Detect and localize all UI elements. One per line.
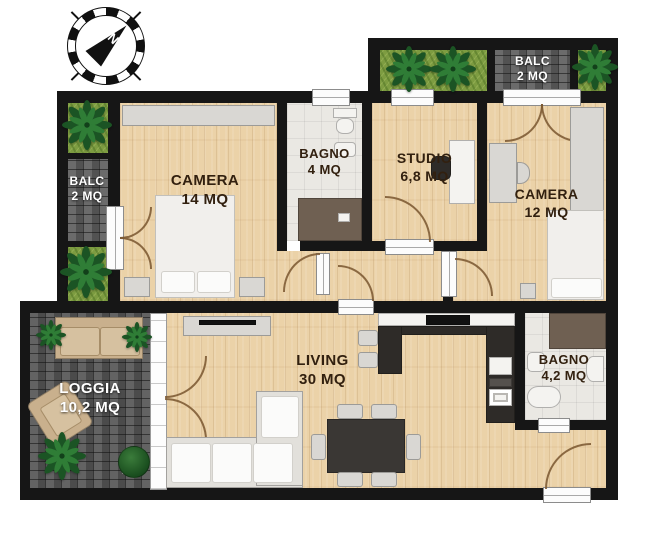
shower — [549, 313, 606, 349]
palm-plant-icon — [386, 46, 432, 92]
room-name: BAGNO — [539, 352, 589, 368]
shower-handle — [338, 213, 350, 222]
camera14-wardrobe — [122, 105, 275, 126]
wall-bagno42-bottom-a — [515, 420, 538, 430]
tv-cabinet — [183, 316, 271, 336]
dining-table — [327, 419, 405, 473]
room-label-bagno42: BAGNO 4,2 MQ — [519, 352, 609, 385]
palm-plant-icon — [36, 320, 66, 350]
bathtub — [527, 386, 561, 408]
room-area: 4,2 MQ — [541, 368, 586, 384]
toilet — [336, 118, 354, 134]
camera14-nightstand — [124, 277, 150, 297]
wall-studio-camera12 — [477, 91, 487, 251]
room-name: BALC — [70, 174, 105, 189]
sofa-cushion — [261, 396, 299, 438]
room-name: CAMERA — [171, 172, 239, 191]
wall-planter-divider — [68, 153, 108, 159]
sofa-cushion — [171, 443, 211, 483]
wall-hall-top-a — [300, 241, 385, 251]
room-name: BAGNO — [299, 146, 349, 162]
wall-bottom — [20, 488, 618, 500]
camera12-nightstand — [520, 283, 536, 299]
palm-plant-icon — [62, 100, 112, 150]
room-area: 30 MQ — [299, 371, 346, 390]
room-area: 2 MQ — [72, 189, 103, 204]
room-name: CAMERA — [515, 186, 579, 204]
wall-bagno42-bottom-b — [568, 420, 606, 430]
wall-camera14-bottom — [108, 301, 338, 313]
palm-plant-icon — [430, 46, 476, 92]
wall-camera12-bottom — [443, 301, 606, 313]
room-label-camera12: CAMERA 12 MQ — [487, 186, 606, 221]
room-name: BALC — [515, 54, 550, 69]
room-area: 10,2 MQ — [60, 399, 120, 418]
room-area: 4 MQ — [308, 162, 341, 178]
dining-chair — [371, 404, 397, 419]
room-area: 14 MQ — [181, 191, 228, 210]
bed-pillow — [197, 271, 231, 293]
north-needle-icon: N — [57, 0, 156, 95]
entrance-door-sill — [543, 487, 591, 503]
room-label-bagno4: BAGNO 4 MQ — [287, 146, 362, 179]
room-name: LIVING — [296, 352, 348, 371]
wall-bagno4-studio — [362, 91, 372, 251]
stove — [426, 315, 470, 325]
bagno42-door-sill — [538, 418, 570, 433]
room-area: 2 MQ — [517, 69, 548, 84]
hall-living-door-sill — [338, 299, 374, 315]
sofa-cushion — [212, 443, 252, 483]
room-area: 12 MQ — [524, 204, 568, 222]
sofa-cushion — [60, 327, 100, 356]
wall-right — [606, 38, 618, 500]
fridge — [489, 357, 512, 375]
room-label-camera14: CAMERA 14 MQ — [150, 172, 260, 210]
room-label-loggia: LOGGIA 10,2 MQ — [30, 380, 150, 418]
dining-chair — [337, 472, 363, 487]
bush-plant-icon — [118, 446, 150, 478]
wall-loggia-left — [20, 301, 30, 500]
room-label-balc-left: BALC 2 MQ — [58, 174, 116, 204]
palm-plant-icon — [38, 432, 86, 480]
room-area: 6,8 MQ — [400, 168, 448, 186]
palm-plant-icon — [60, 246, 112, 298]
kitchen-stool — [358, 330, 378, 346]
room-label-studio: STUDIO 6,8 MQ — [372, 150, 477, 185]
bagno4-window — [312, 89, 350, 106]
palm-plant-icon — [122, 322, 152, 352]
sofa-cushion — [253, 443, 293, 483]
dining-chair — [337, 404, 363, 419]
floor-plan: N — [0, 0, 656, 533]
camera14-nightstand — [239, 277, 265, 297]
palm-plant-icon — [572, 44, 618, 90]
shower — [298, 198, 362, 241]
wall-hall-bottom — [372, 301, 443, 313]
toilet-tank — [333, 108, 357, 118]
wall-camera14-bagno4 — [277, 91, 287, 251]
bed-pillow — [161, 271, 195, 293]
compass-rose-icon: N — [67, 7, 145, 85]
room-name: LOGGIA — [59, 380, 121, 399]
wall-hall-top-b — [432, 241, 487, 251]
wall-planter-divider — [487, 50, 495, 91]
oven — [489, 389, 512, 406]
dining-chair — [406, 434, 421, 460]
dining-chair — [371, 472, 397, 487]
bed-pillow — [551, 278, 602, 298]
room-label-living: LIVING 30 MQ — [250, 352, 395, 390]
room-label-balc-top: BALC 2 MQ — [495, 54, 570, 84]
dining-chair — [311, 434, 326, 460]
tv — [199, 320, 256, 325]
room-name: STUDIO — [397, 150, 452, 168]
kitchen-sink — [489, 378, 512, 387]
